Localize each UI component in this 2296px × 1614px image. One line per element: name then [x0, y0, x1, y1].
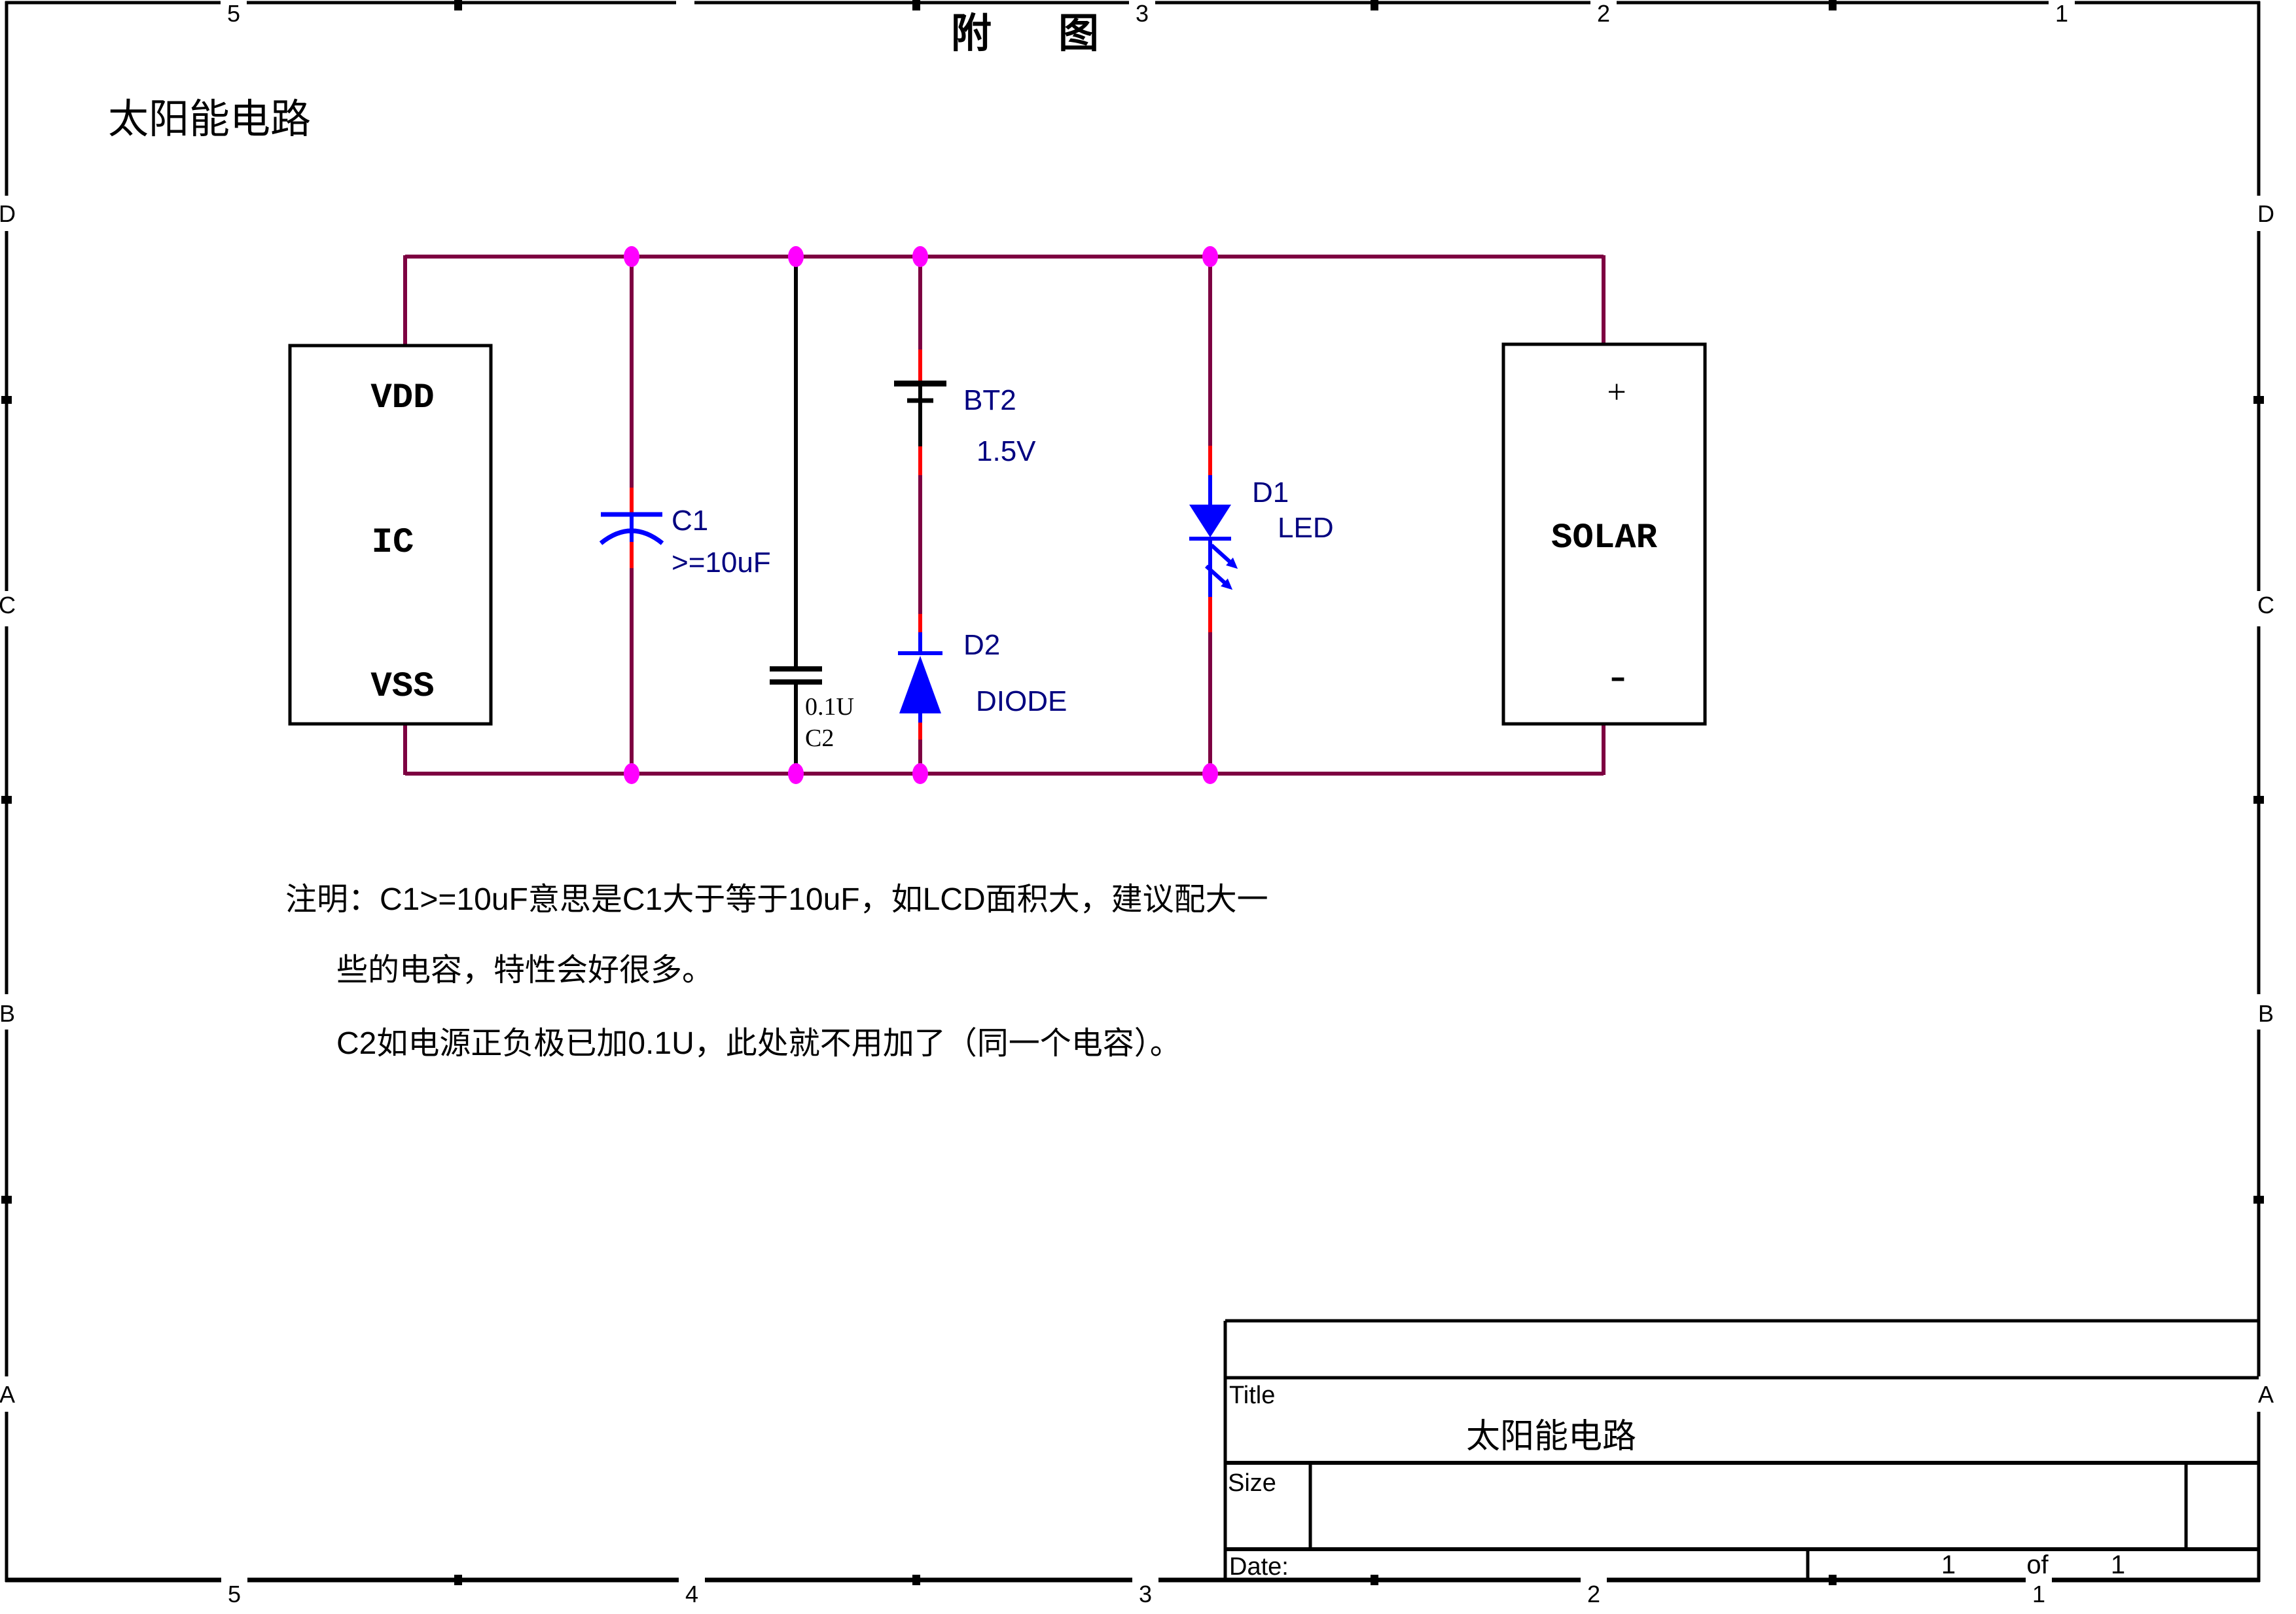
sheet-frame: 5 3 2 1 5 4 3 2 1 D C B A D C B A: [0, 0, 2274, 1607]
zone-label-right-d: D: [2257, 200, 2274, 227]
zone-label-bottom-4: 4: [685, 1581, 698, 1607]
zone-label-left-d: D: [0, 200, 16, 227]
ic-name-label: IC: [372, 523, 414, 563]
title-block-title-value: 太阳能电路: [1466, 1418, 1636, 1456]
c2-capacitor: 0.1U C2: [770, 257, 854, 774]
d2-value-label: DIODE: [976, 685, 1067, 717]
bt2-battery: BT2 1.5V: [894, 257, 1036, 614]
sheet-total-number: 1: [2111, 1551, 2125, 1579]
frame-zone-labels: 5 3 2 1 5 4 3 2 1 D C B A D C B A: [0, 0, 2274, 1607]
zone-label-bottom-3: 3: [1139, 1581, 1152, 1607]
title-block-date-label: Date:: [1229, 1553, 1289, 1581]
junction-dot: [624, 246, 639, 267]
c2-ref-label: C2: [805, 725, 834, 752]
bt2-ref-label: BT2: [963, 384, 1016, 416]
solar-plus-label: +: [1607, 374, 1626, 411]
sheet-page-number: 1: [1941, 1551, 1956, 1579]
notes: 注明：C1>=10uF意思是C1大于等于10uF，如LCD面积大，建议配大一 些…: [285, 882, 1268, 1061]
zone-label-bottom-5: 5: [228, 1581, 241, 1607]
zone-label-left-a: A: [0, 1381, 15, 1408]
d1-value-label: LED: [1278, 512, 1334, 544]
ic-pin-vss-label: VSS: [370, 667, 434, 707]
vss-rail-wire: [405, 723, 1604, 775]
zone-label-top-3: 3: [1136, 0, 1149, 27]
solar-minus-label: -: [1610, 649, 1626, 701]
note-line-2: 些的电容，特性会好很多。: [336, 953, 713, 988]
zone-label-top-5: 5: [227, 0, 240, 27]
junction-dot: [1202, 246, 1218, 267]
zone-label-right-c: C: [2257, 592, 2274, 619]
d1-ref-label: D1: [1252, 476, 1289, 509]
junction-dot: [624, 763, 639, 784]
c1-ref-label: C1: [672, 505, 708, 537]
zone-label-right-b: B: [2258, 1000, 2274, 1027]
title-block: Title 太阳能电路 Size Date: 1 of 1: [1225, 1321, 2259, 1581]
d2-anode-triangle: [899, 656, 941, 713]
junction-dot: [1202, 763, 1218, 784]
zone-label-top-2: 2: [1597, 0, 1610, 27]
d2-ref-label: D2: [963, 629, 1000, 661]
zone-label-left-c: C: [0, 592, 16, 619]
zone-label-left-b: B: [0, 1000, 15, 1027]
zone-label-bottom-1: 1: [2032, 1581, 2045, 1607]
junction-dot: [912, 763, 928, 784]
solar-name-label: SOLAR: [1551, 518, 1658, 558]
title-block-title-label: Title: [1229, 1382, 1275, 1409]
zone-label-top-1: 1: [2055, 0, 2068, 27]
title-block-size-label: Size: [1228, 1469, 1276, 1497]
note-line-3: C2如电源正负极已加0.1U，此处就不用加了（同一个电容）。: [336, 1026, 1181, 1061]
junction-dot: [912, 246, 928, 267]
frame-ticks: [1, 0, 2264, 1585]
vdd-rail-wire: [405, 255, 1604, 346]
frame-label-gaps: [3, 0, 2263, 1584]
circuit: VDD IC VSS + SOLAR - C1 >=10uF: [290, 246, 1705, 784]
d1-led: D1 LED: [1189, 257, 1334, 774]
sheet-of-label: of: [2026, 1551, 2049, 1579]
junction-dot: [788, 763, 804, 784]
bt2-value-label: 1.5V: [977, 435, 1036, 467]
schematic-heading: 太阳能电路: [108, 98, 311, 142]
junction-dot: [788, 246, 804, 267]
schematic-drawing: 5 3 2 1 5 4 3 2 1 D C B A D C B A 附 图 太阳…: [0, 0, 2296, 1614]
page-title: 附 图: [951, 11, 1112, 56]
ic-component: VDD IC VSS: [290, 346, 491, 724]
solar-component: + SOLAR -: [1503, 344, 1705, 724]
note-line-1: 注明：C1>=10uF意思是C1大于等于10uF，如LCD面积大，建议配大一: [285, 882, 1268, 917]
c1-capacitor: C1 >=10uF: [601, 257, 771, 774]
zone-label-bottom-2: 2: [1587, 1581, 1600, 1607]
c2-value-label: 0.1U: [805, 693, 854, 721]
zone-label-right-a: A: [2258, 1381, 2274, 1408]
ic-pin-vdd-label: VDD: [370, 378, 434, 418]
d1-anode-triangle: [1189, 505, 1231, 537]
schematic-sheet: 5 3 2 1 5 4 3 2 1 D C B A D C B A 附 图 太阳…: [0, 0, 2296, 1614]
d2-diode: D2 DIODE: [898, 614, 1067, 774]
c1-value-label: >=10uF: [672, 547, 771, 579]
